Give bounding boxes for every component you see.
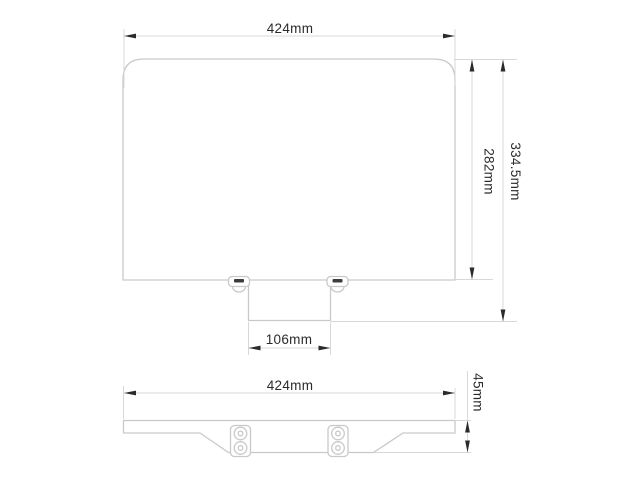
clip-slot (234, 279, 244, 283)
arrowhead-left (124, 391, 136, 396)
screw-plate-left (231, 426, 251, 457)
dim-label-front-height: 45mm (471, 373, 486, 412)
arrowhead-left (124, 34, 136, 39)
top-view: 424mm 282mm 334.5mm (123, 21, 523, 355)
dimension-drawing: 424mm 282mm 334.5mm (0, 0, 640, 480)
dim-label-top-width: 424mm (267, 21, 314, 36)
dim-label-bracket-width: 106mm (266, 332, 313, 347)
panel-clip-left (229, 277, 250, 293)
drawing-canvas: 424mm 282mm 334.5mm (0, 0, 640, 480)
dim-panel-height: 282mm (456, 60, 497, 280)
arrowhead-right (443, 391, 455, 396)
dim-label-front-width: 424mm (267, 378, 314, 393)
arrowhead-right (319, 346, 331, 351)
dim-label-panel-height: 282mm (482, 148, 497, 195)
arrowhead-up (501, 60, 506, 72)
mounting-bracket (249, 280, 331, 321)
arrowhead-up (465, 421, 470, 433)
arrowhead-up (470, 60, 475, 72)
clip-arc (331, 287, 344, 293)
plate (231, 426, 251, 457)
arrowhead-down (465, 441, 470, 453)
dim-front-width: 424mm (124, 378, 456, 419)
arrowhead-down (470, 268, 475, 280)
dim-bracket-width: 106mm (249, 322, 331, 355)
plate (328, 426, 348, 457)
clip-slot (333, 279, 343, 283)
arrowhead-down (501, 310, 506, 322)
screw-plate-right (328, 426, 348, 457)
arrowhead-left (249, 346, 261, 351)
arrowhead-right (443, 34, 455, 39)
bar-outline (124, 421, 456, 453)
front-view: 424mm 45mm (124, 371, 486, 457)
clip-arc (233, 287, 246, 293)
panel-outline (123, 59, 455, 280)
dim-label-overall-height: 334.5mm (508, 142, 523, 200)
